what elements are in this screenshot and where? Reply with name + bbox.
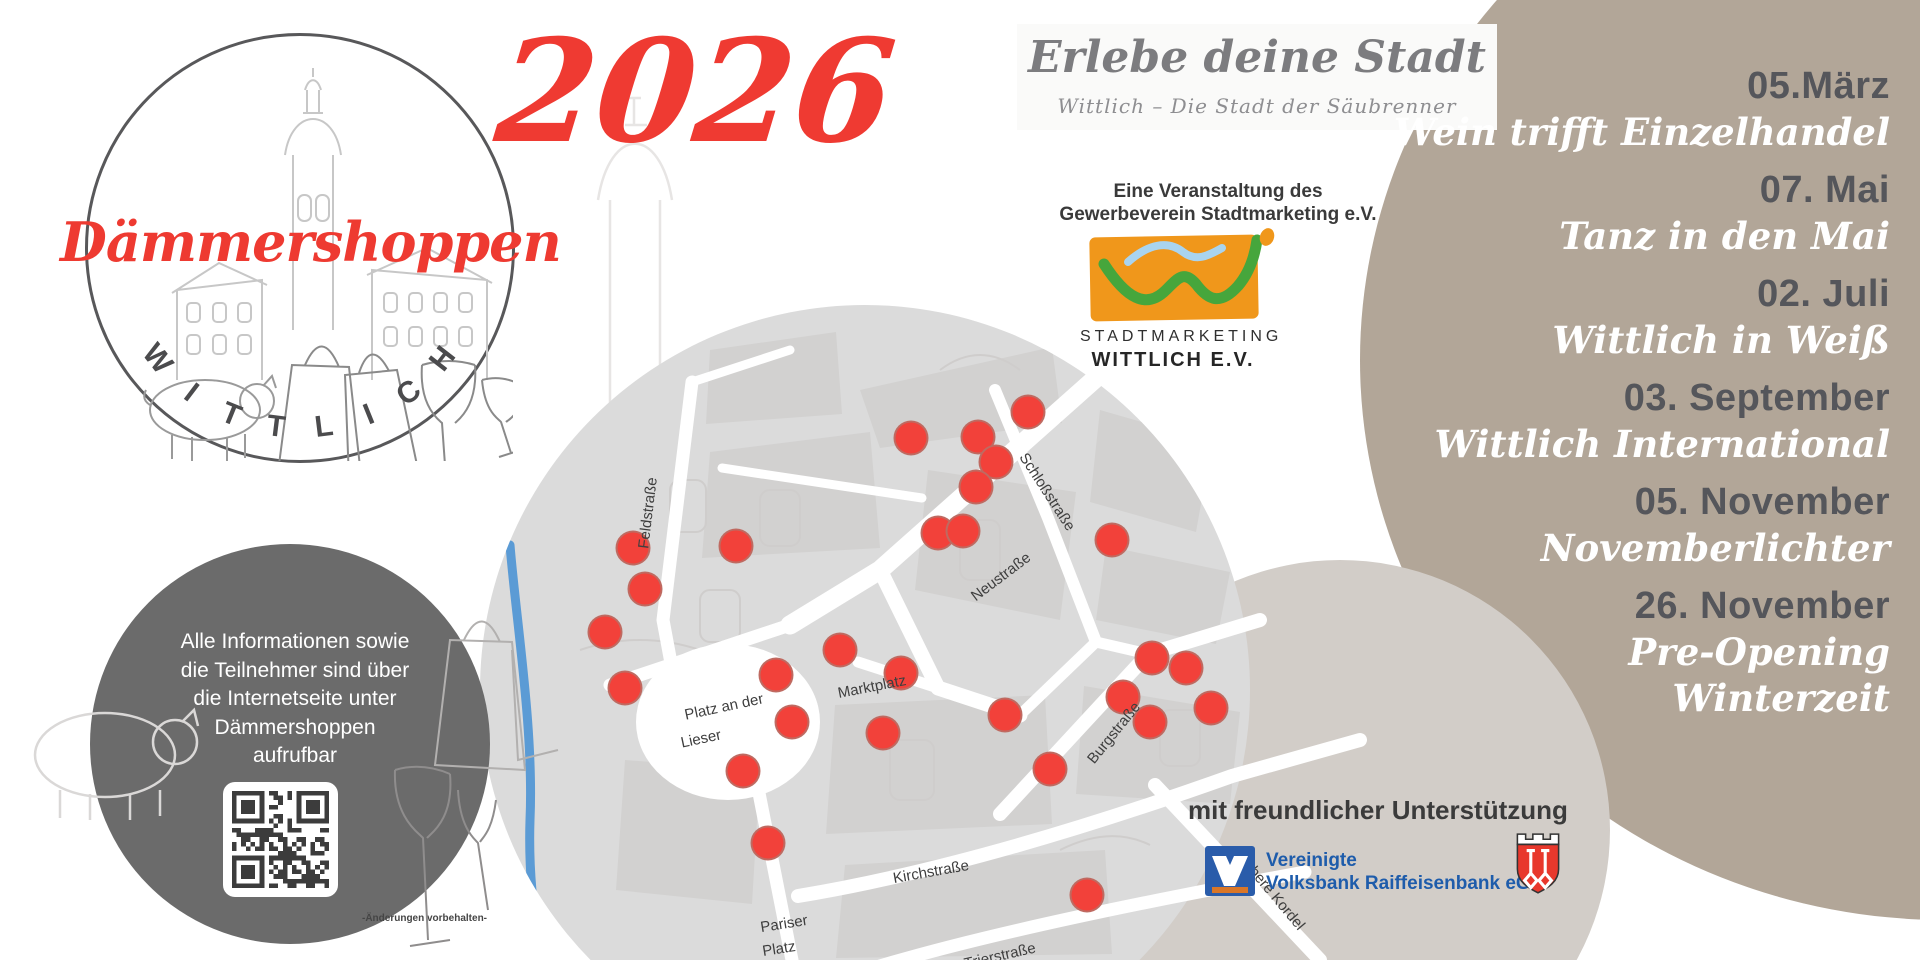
event-date: 05.März — [1394, 64, 1890, 109]
events-list: 05.März Wein trifft Einzelhandel 07. Mai… — [1394, 64, 1890, 734]
event-name: Tanz in den Mai — [1394, 213, 1890, 259]
event-name: Pre-Opening Winterzeit — [1394, 629, 1890, 721]
event-location-dot — [1135, 641, 1170, 676]
wittlich-coat-of-arms — [1512, 830, 1564, 898]
event-date: 05. November — [1394, 480, 1890, 525]
event-location-dot — [894, 421, 929, 456]
event-location-dot — [1011, 395, 1046, 430]
event-location-dot — [1033, 752, 1068, 787]
event-date: 07. Mai — [1394, 168, 1890, 213]
event-item: 02. Juli Wittlich in Weiß — [1394, 272, 1890, 363]
event-name: Wittlich International — [1394, 421, 1890, 467]
event-location-dot — [988, 698, 1023, 733]
shopping-bags-icon — [277, 346, 417, 461]
event-name: Wein trifft Einzelhandel — [1394, 109, 1890, 155]
event-location-dot — [726, 754, 761, 789]
bank-name: Vereinigte Volksbank Raiffeisenbank eG — [1266, 849, 1531, 895]
wine-glasses-icon — [422, 361, 513, 461]
stadtmarketing-caption2: WITTLICH E.V. — [1080, 349, 1266, 372]
bank-name-line2: Volksbank Raiffeisenbank eG — [1266, 872, 1531, 895]
event-location-dot — [1070, 878, 1105, 913]
volksbank-logo — [1205, 846, 1255, 896]
event-date: 03. September — [1394, 376, 1890, 421]
shopping-bags-sketch — [420, 580, 560, 790]
event-item: 05. November Novemberlichter — [1394, 480, 1890, 571]
event-item: 26. November Pre-Opening Winterzeit — [1394, 584, 1890, 721]
event-name: Novemberlichter — [1394, 525, 1890, 571]
qr-code — [223, 782, 338, 897]
stadtmarketing-logo — [1088, 226, 1278, 326]
event-location-dot — [608, 671, 643, 706]
event-item: 07. Mai Tanz in den Mai — [1394, 168, 1890, 259]
stadtmarketing-caption: STADTMARKETING — [1080, 328, 1266, 346]
event-location-dot — [588, 615, 623, 650]
event-location-dot — [866, 716, 901, 751]
logo-title: Dämmershoppen — [60, 210, 540, 274]
event-location-dot — [1169, 651, 1204, 686]
organizer-line2: Gewerbeverein Stadtmarketing e.V. — [1018, 204, 1418, 226]
event-item: 03. September Wittlich International — [1394, 376, 1890, 467]
event-location-dot — [719, 529, 754, 564]
event-location-dot — [823, 633, 858, 668]
event-location-dot — [946, 514, 981, 549]
poster: Feldstraße Neustraße Schloßstraße Marktp… — [0, 0, 1920, 960]
pig-icon — [144, 376, 276, 461]
event-date: 26. November — [1394, 584, 1890, 629]
event-location-dot — [628, 572, 663, 607]
year-title: 2026 — [490, 14, 902, 170]
support-heading: mit freundlicher Unterstützung — [1188, 795, 1568, 826]
event-location-dot — [775, 705, 810, 740]
event-location-dot — [959, 470, 994, 505]
event-item: 05.März Wein trifft Einzelhandel — [1394, 64, 1890, 155]
event-name: Wittlich in Weiß — [1394, 317, 1890, 363]
event-location-dot — [759, 658, 794, 693]
event-location-dot — [1095, 523, 1130, 558]
bank-name-line1: Vereinigte — [1266, 849, 1531, 872]
pig-sketch — [20, 690, 210, 820]
event-date: 02. Juli — [1394, 272, 1890, 317]
event-location-dot — [751, 826, 786, 861]
organizer-line1: Eine Veranstaltung des — [1018, 181, 1418, 203]
event-location-dot — [1194, 691, 1229, 726]
